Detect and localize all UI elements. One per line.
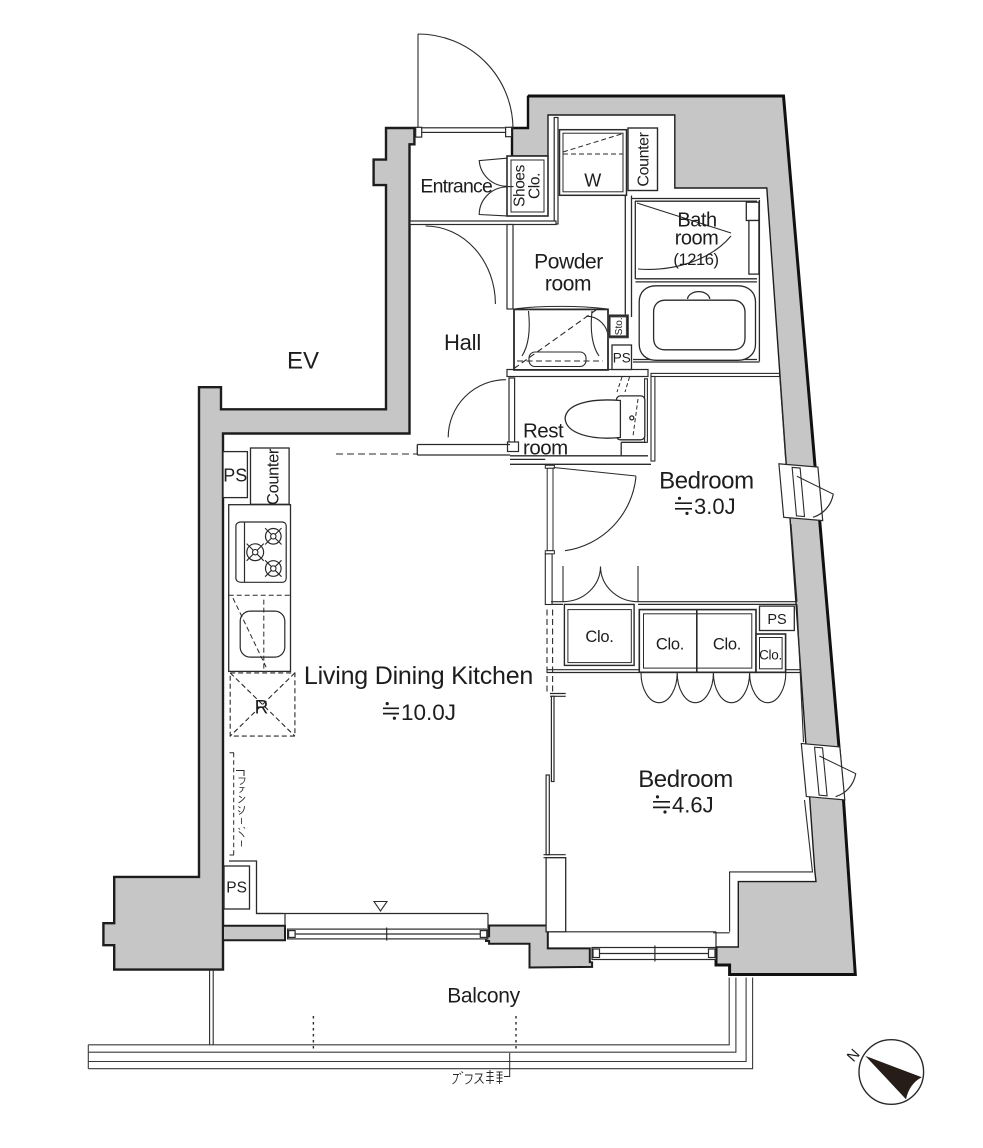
svg-text:EV: EV — [287, 348, 319, 375]
svg-text:room: room — [675, 228, 719, 250]
svg-text:W: W — [584, 171, 601, 191]
svg-text:Clo.: Clo. — [759, 648, 782, 663]
svg-text:Powder: Powder — [534, 251, 603, 274]
svg-text:PS: PS — [223, 466, 247, 486]
svg-text:room: room — [523, 437, 568, 460]
svg-text:(1216): (1216) — [673, 251, 718, 269]
svg-text:Hall: Hall — [444, 330, 481, 355]
svg-text:Living Dining Kitchen: Living Dining Kitchen — [304, 662, 533, 690]
svg-text:Bedroom: Bedroom — [638, 766, 733, 793]
svg-text:4.6J: 4.6J — [672, 793, 714, 818]
svg-text:Balcony: Balcony — [447, 985, 520, 1008]
svg-text:Clo.: Clo. — [656, 636, 684, 654]
svg-text:R: R — [255, 698, 269, 719]
svg-text:3.0J: 3.0J — [694, 494, 736, 519]
svg-text:Counter: Counter — [635, 131, 652, 186]
svg-text:Sto.: Sto. — [614, 317, 625, 335]
svg-text:Counter: Counter — [265, 448, 283, 505]
svg-text:Clo.: Clo. — [713, 636, 741, 654]
svg-text:Bedroom: Bedroom — [659, 468, 754, 495]
svg-text:Clo.: Clo. — [585, 628, 613, 646]
svg-text:Clo.: Clo. — [527, 173, 544, 199]
svg-text:room: room — [545, 273, 591, 296]
svg-text:PS: PS — [613, 351, 631, 366]
svg-text:Entrance: Entrance — [420, 176, 492, 198]
svg-text:10.0J: 10.0J — [401, 700, 456, 725]
svg-text:PS: PS — [226, 880, 247, 897]
svg-text:PS: PS — [767, 612, 786, 628]
